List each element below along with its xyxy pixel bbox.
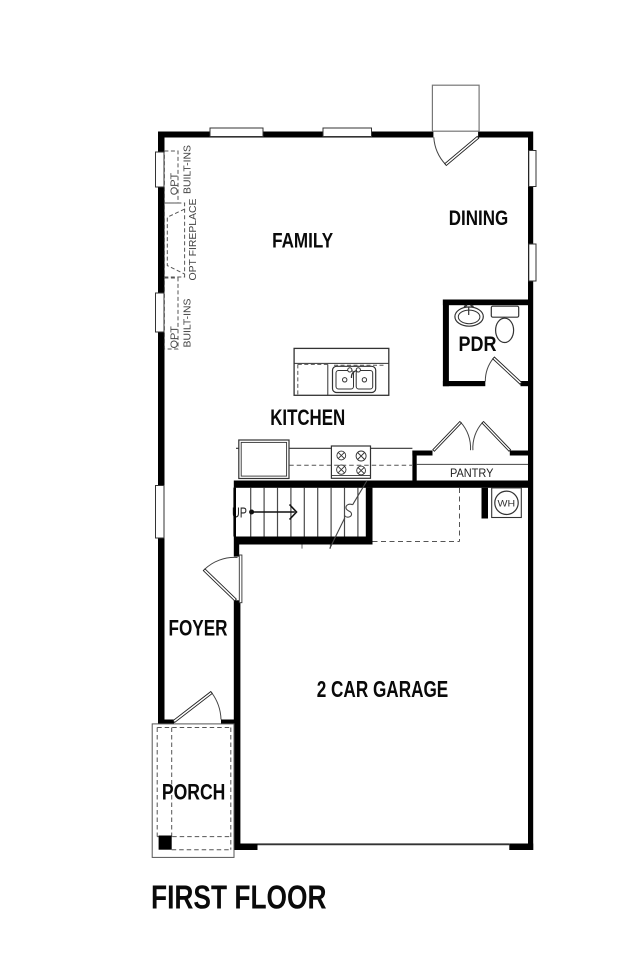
svg-text:BUILT-INS: BUILT-INS	[181, 299, 193, 348]
svg-text:OPT: OPT	[168, 172, 180, 195]
svg-text:PDR: PDR	[459, 332, 497, 356]
svg-text:PANTRY: PANTRY	[450, 468, 494, 480]
svg-text:FAMILY: FAMILY	[272, 229, 333, 253]
svg-text:BUILT-INS: BUILT-INS	[181, 145, 193, 194]
svg-text:FOYER: FOYER	[169, 616, 228, 641]
svg-text:OPT FIREPLACE: OPT FIREPLACE	[187, 199, 199, 281]
svg-text:FIRST FLOOR: FIRST FLOOR	[151, 880, 327, 917]
svg-text:PORCH: PORCH	[162, 779, 226, 804]
svg-text:WH: WH	[498, 498, 516, 509]
svg-text:DINING: DINING	[449, 206, 509, 230]
svg-text:KITCHEN: KITCHEN	[270, 405, 345, 430]
svg-text:OPT: OPT	[168, 325, 180, 348]
svg-text:2 CAR GARAGE: 2 CAR GARAGE	[317, 676, 449, 702]
